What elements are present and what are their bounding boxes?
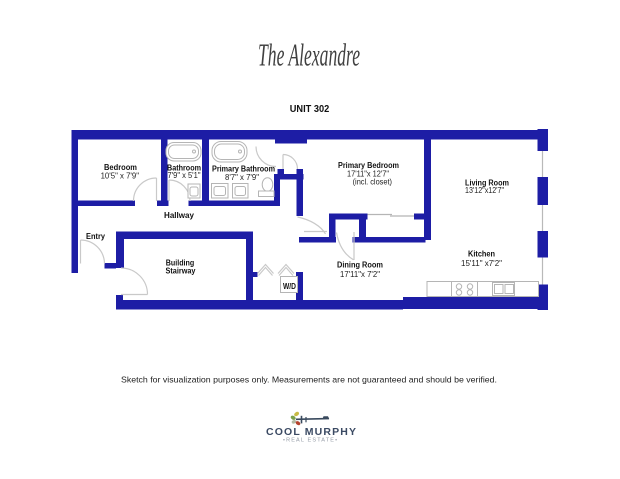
svg-text:7'9" x 5'1": 7'9" x 5'1" [168,171,201,180]
svg-text:Dining Room: Dining Room [337,260,383,270]
svg-text:15'11" x7'2": 15'11" x7'2" [461,259,502,268]
svg-text:Sketch for visualization purpo: Sketch for visualization purposes only. … [121,375,497,385]
svg-text:(incl. closet): (incl. closet) [353,177,393,186]
svg-text:Entry: Entry [86,231,105,241]
svg-text:Hallway: Hallway [164,210,194,220]
svg-text:Primary Bathroom: Primary Bathroom [212,163,275,173]
svg-text:Kitchen: Kitchen [468,249,495,259]
svg-text:The Alexandre: The Alexandre [258,37,360,72]
svg-text:17'11"x 7'2": 17'11"x 7'2" [340,270,380,279]
svg-text:Stairway: Stairway [166,266,196,276]
svg-text:Primary Bedroom: Primary Bedroom [338,160,399,170]
svg-text:13'12"x12'7": 13'12"x12'7" [465,186,504,195]
svg-text:UNIT 302: UNIT 302 [290,104,330,115]
svg-text:COOL MURPHY: COOL MURPHY [266,426,356,438]
svg-text:10'5" x 7'9": 10'5" x 7'9" [101,171,139,180]
svg-text:W/D: W/D [283,281,296,291]
svg-text:•REAL ESTATE•: •REAL ESTATE• [283,437,337,443]
svg-text:8'7" x 7'9": 8'7" x 7'9" [225,173,259,182]
